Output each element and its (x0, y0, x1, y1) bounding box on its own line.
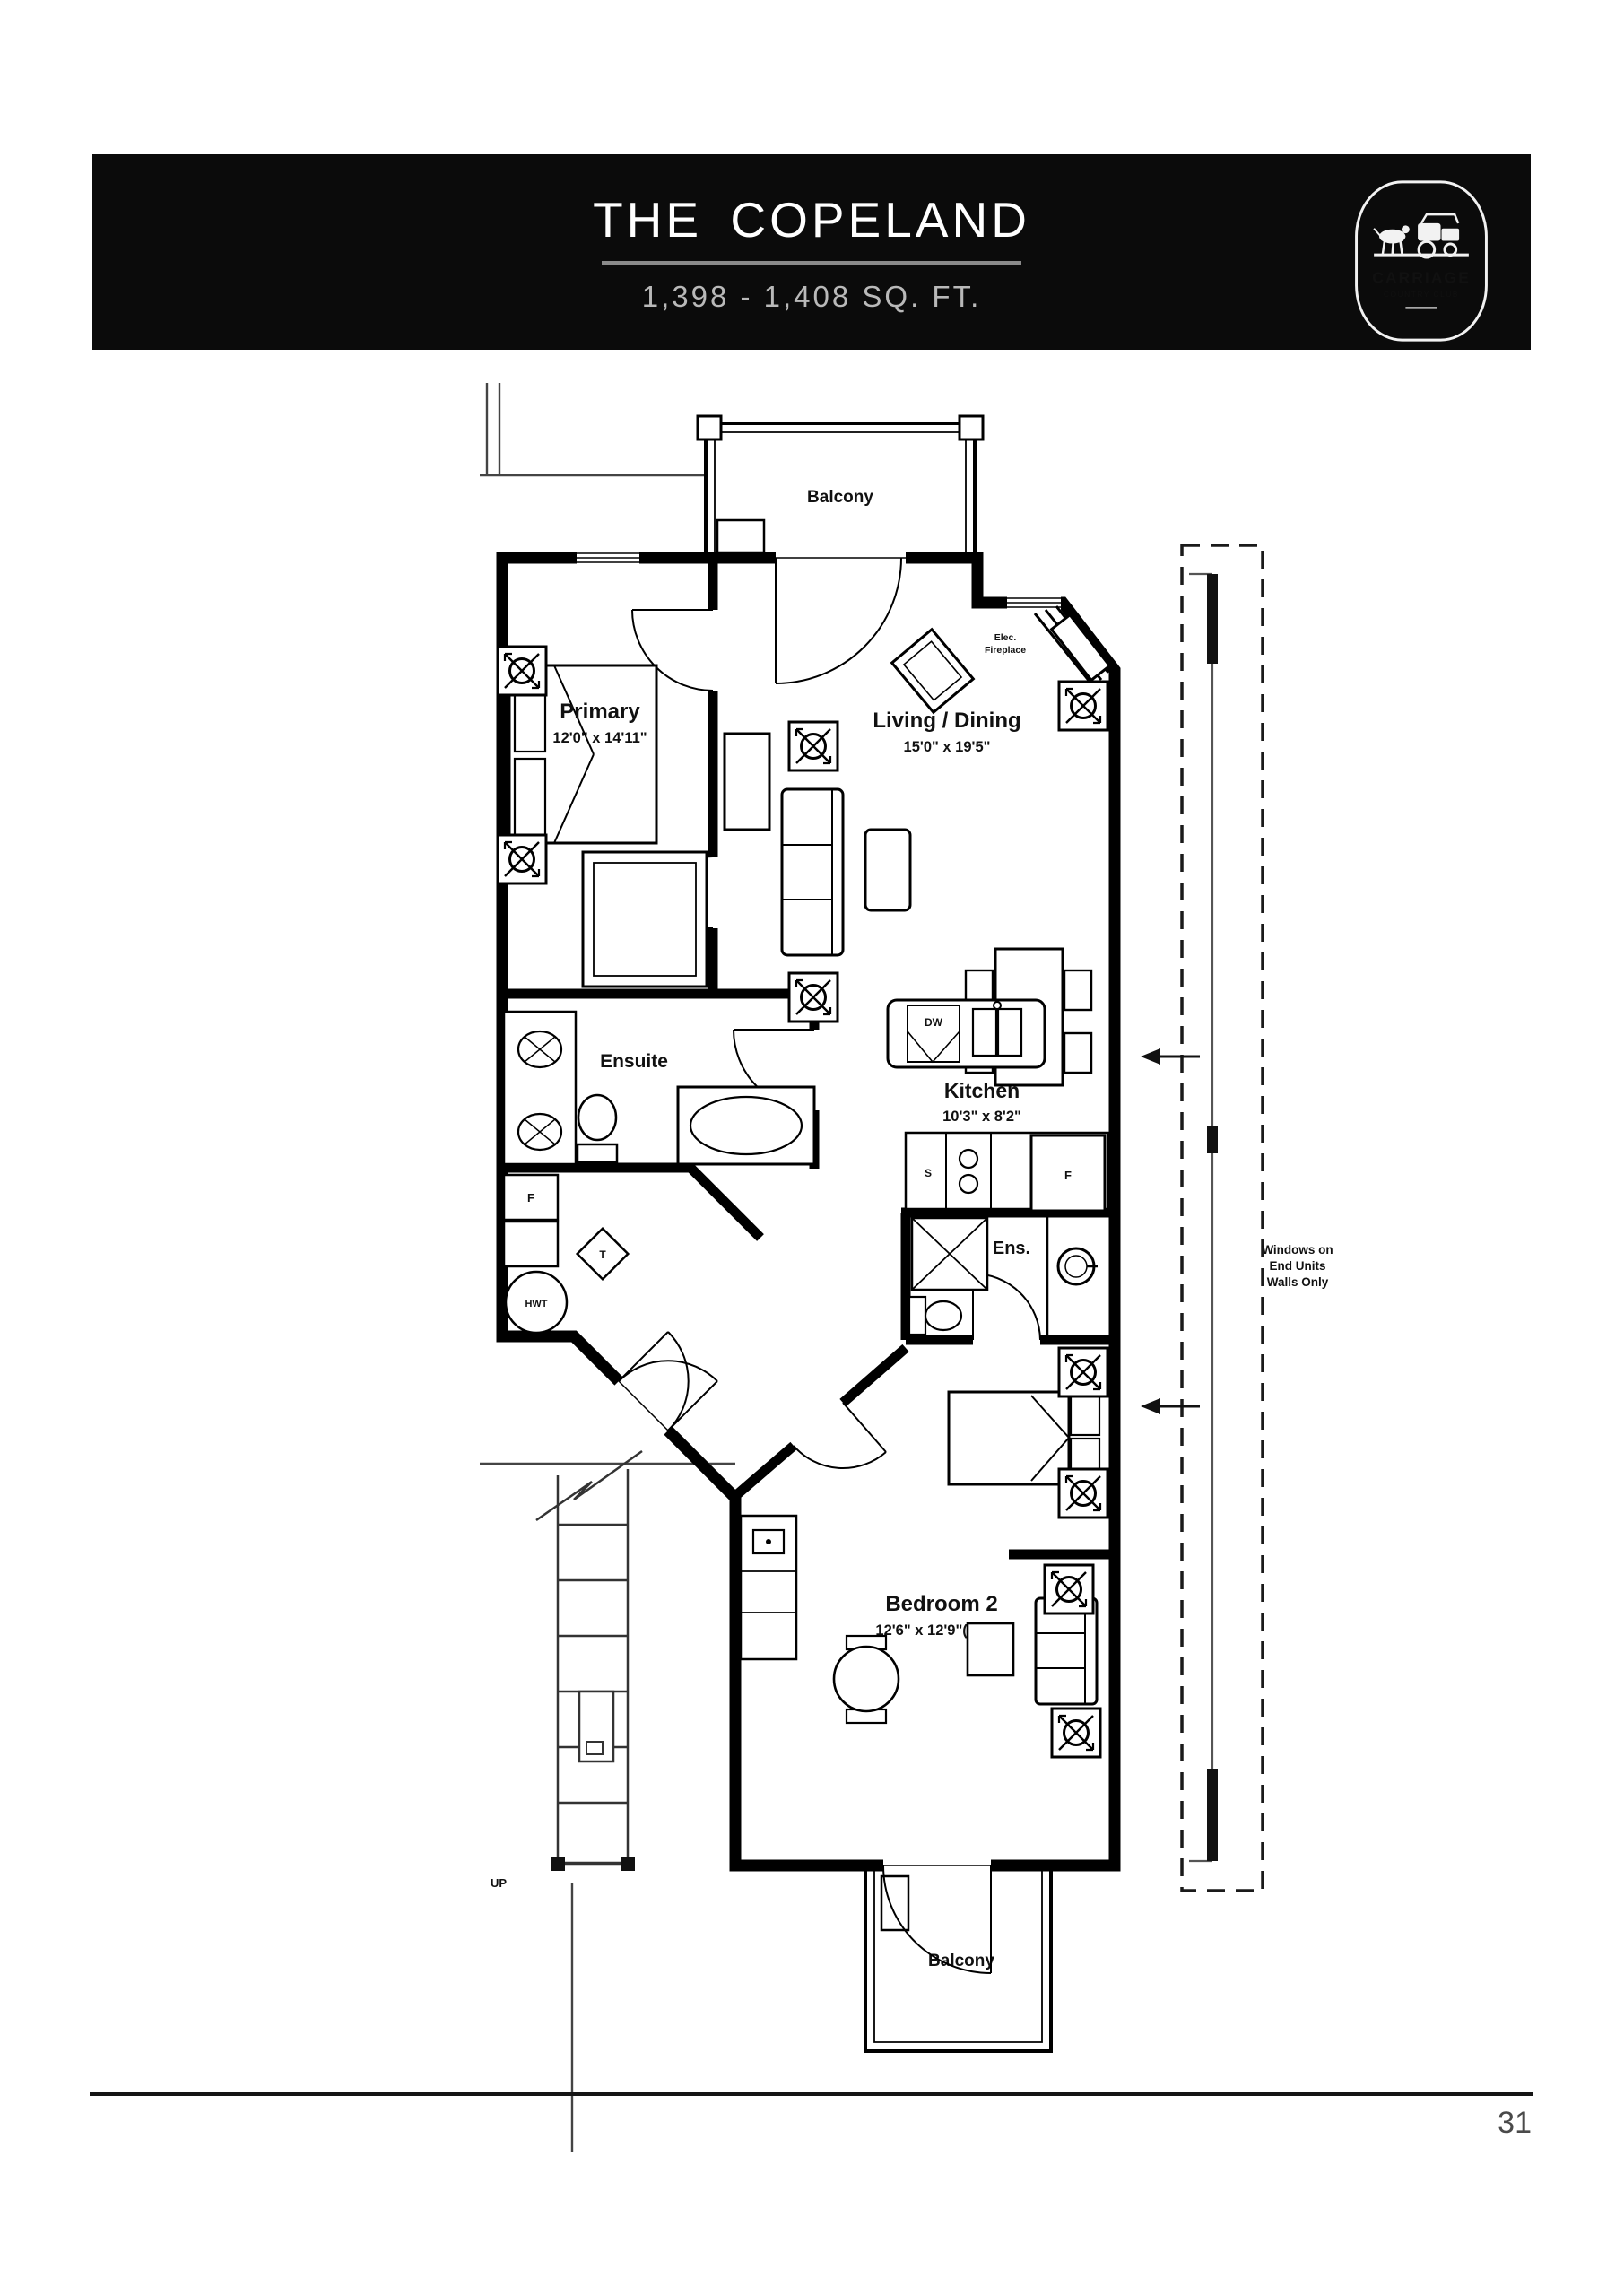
light-symbol (1052, 1709, 1100, 1757)
window-note-line3: Walls Only (1267, 1275, 1329, 1289)
fridge-label: F (1064, 1169, 1072, 1182)
primary-wardrobe (583, 852, 707, 987)
primary-dims: 12'0" x 14'11" (552, 730, 647, 746)
dishwasher (908, 1005, 960, 1062)
kitchen-label: Kitchen (944, 1079, 1020, 1102)
brochure-page: THE COPELAND 1,398 - 1,408 SQ. FT. (0, 0, 1624, 2296)
ens2-label: Ens. (993, 1239, 1030, 1258)
kitchen-dims: 10'3" x 8'2" (942, 1109, 1021, 1125)
kitchen-sink (973, 1002, 1021, 1056)
balcony-top-label: Balcony (807, 488, 873, 507)
primary-label: Primary (560, 700, 640, 724)
bedroom2-ottoman (968, 1623, 1013, 1675)
light-symbol (789, 722, 838, 770)
window-note-line1: Windows on (1262, 1243, 1333, 1257)
bedroom2-label: Bedroom 2 (885, 1592, 997, 1616)
end-unit-window-wall (1182, 545, 1263, 1891)
footer-divider (90, 2092, 1533, 2096)
stove-burner (960, 1150, 977, 1168)
light-symbol (789, 973, 838, 1022)
light-symbol (498, 835, 546, 883)
dishwasher-label: DW (925, 1016, 943, 1029)
stairs-up-label: UP (491, 1876, 507, 1890)
balcony-top-door (776, 558, 901, 683)
window-wall-arrows (1141, 1048, 1200, 1414)
page-number: 31 (1453, 2106, 1532, 2141)
kitchen-counter (906, 1133, 1108, 1211)
floor-plan: UP Balcony Balcony (0, 0, 1624, 2296)
ensuite-label: Ensuite (600, 1051, 668, 1072)
stove-label: S (925, 1167, 932, 1179)
light-symbol (498, 647, 546, 695)
fireplace-label-line1: Elec. (994, 632, 1017, 643)
living-console (725, 734, 769, 830)
fireplace-label-line2: Fireplace (985, 645, 1026, 656)
hwt-label: HWT (525, 1299, 547, 1309)
living-dims: 15'0" x 19'5" (904, 739, 991, 755)
stairs (536, 1451, 642, 1871)
sofa (782, 789, 843, 955)
balcony-bottom-label: Balcony (928, 1952, 994, 1970)
light-symbol (1059, 1348, 1107, 1396)
ens2-bathroom (909, 1213, 1098, 1340)
window-note-line2: End Units (1270, 1259, 1326, 1273)
bedroom2-closet (741, 1516, 796, 1659)
ens2-toilet (909, 1297, 925, 1335)
ensuite-toilet (578, 1095, 617, 1162)
kitchen-island (888, 1000, 1045, 1067)
balcony-planter (717, 520, 764, 552)
bedroom2-table (834, 1636, 899, 1723)
accent-chair (892, 630, 974, 712)
stove-burner (960, 1175, 977, 1193)
armchair (865, 830, 910, 910)
bedroom2-door (794, 1403, 886, 1468)
furnace-label: F (527, 1191, 534, 1205)
thermostat-label: T (599, 1248, 606, 1261)
light-symbol (1045, 1565, 1093, 1613)
light-symbol (1059, 1469, 1107, 1518)
utility-closet (504, 1175, 628, 1333)
ensuite-tub (678, 1087, 814, 1164)
light-symbol (1059, 682, 1107, 730)
balcony-top (698, 416, 983, 556)
ensuite-vanity (504, 1012, 576, 1164)
living-label: Living / Dining (873, 709, 1020, 733)
